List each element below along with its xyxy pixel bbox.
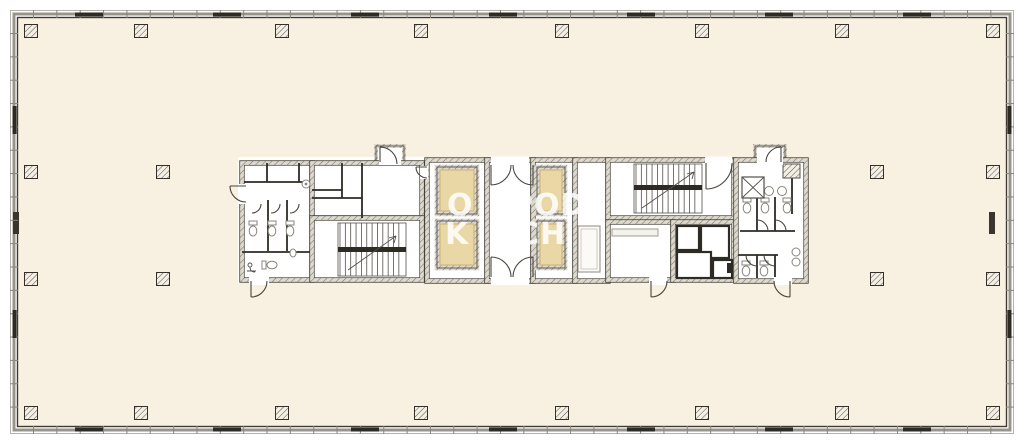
column xyxy=(871,166,884,179)
facade-spandrel-bar xyxy=(903,428,931,432)
facade-spandrel-bar xyxy=(765,428,793,432)
sink-icon xyxy=(765,187,774,196)
sink-icon xyxy=(778,187,787,196)
column xyxy=(696,407,709,420)
toilet-icon xyxy=(262,261,277,269)
column xyxy=(836,25,849,38)
ahu-equipment xyxy=(578,226,600,272)
column xyxy=(415,25,428,38)
column xyxy=(25,273,38,286)
sink-icon xyxy=(792,258,800,266)
facade-spandrel-bar xyxy=(213,13,241,17)
facade-spandrel-bar xyxy=(75,428,103,432)
toilet-icon xyxy=(743,198,751,213)
column xyxy=(871,273,884,286)
watermark-fragment: K xyxy=(445,217,470,252)
duct-shaft-xbox xyxy=(742,177,764,198)
facade-pier-left xyxy=(13,212,19,234)
facade-pier-right xyxy=(989,212,995,234)
facade-spandrel-bar xyxy=(351,13,379,17)
service-closet-boxes xyxy=(677,226,732,278)
column xyxy=(135,25,148,38)
column xyxy=(836,407,849,420)
sink-drain xyxy=(305,183,308,186)
facade-spandrel-bar xyxy=(903,13,931,17)
counter-shelf xyxy=(612,229,658,236)
facade-spandrel-bar xyxy=(489,13,517,17)
column xyxy=(25,25,38,38)
column xyxy=(987,25,1000,38)
toilet-icon xyxy=(268,221,276,236)
facade-spandrel-bar xyxy=(1008,106,1012,134)
toilet-icon xyxy=(761,198,769,213)
facade-spandrel-bar xyxy=(627,428,655,432)
facade-spandrel-bar xyxy=(1008,310,1012,338)
column xyxy=(25,166,38,179)
watermark-fragment: CH xyxy=(517,217,566,252)
column xyxy=(696,25,709,38)
sink-icon xyxy=(792,248,800,256)
facade-spandrel-bar xyxy=(489,428,517,432)
toilet-icon xyxy=(742,261,750,276)
toilet-icon xyxy=(286,221,294,236)
column xyxy=(987,166,1000,179)
column xyxy=(276,25,289,38)
stair-2-landing-rail xyxy=(634,185,702,190)
floor-plan-page: O POD K CH xyxy=(0,0,1024,444)
column xyxy=(987,273,1000,286)
column xyxy=(556,25,569,38)
column xyxy=(415,407,428,420)
column xyxy=(25,407,38,420)
column xyxy=(157,273,170,286)
toilet-icon xyxy=(760,261,768,276)
column xyxy=(157,166,170,179)
facade-spandrel-bar xyxy=(627,13,655,17)
facade-spandrel-bar xyxy=(75,13,103,17)
column xyxy=(987,407,1000,420)
facade-spandrel-bar xyxy=(13,106,17,134)
facade-spandrel-bar xyxy=(351,428,379,432)
toilet-icon xyxy=(783,198,791,213)
column xyxy=(556,407,569,420)
column xyxy=(135,407,148,420)
column xyxy=(276,407,289,420)
facade-spandrel-bar xyxy=(765,13,793,17)
small-shaft-box xyxy=(783,164,800,178)
riser-element xyxy=(727,263,732,273)
stair-1-landing-rail xyxy=(338,247,406,252)
toilet-icon xyxy=(249,221,257,236)
floor-plan-canvas: O POD K CH xyxy=(0,0,1024,444)
facade-spandrel-bar xyxy=(213,428,241,432)
urinal-icon xyxy=(290,249,296,257)
facade-spandrel-bar xyxy=(13,310,17,338)
